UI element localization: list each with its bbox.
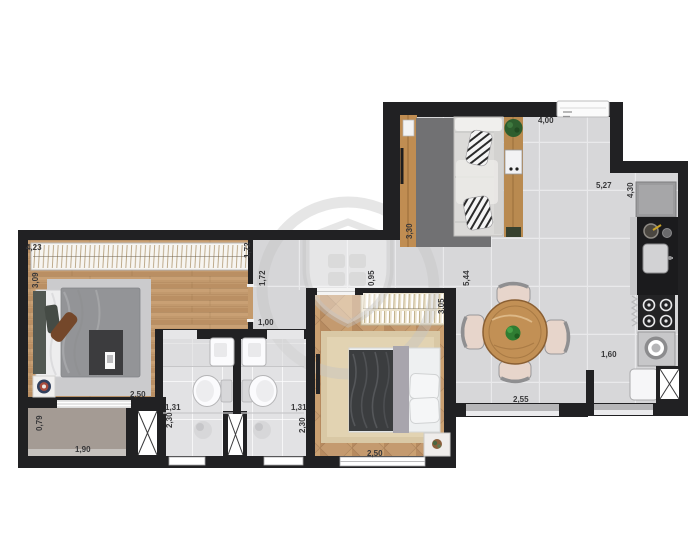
- svg-text:4,00: 4,00: [538, 116, 554, 125]
- svg-text:0,79: 0,79: [35, 415, 44, 431]
- svg-text:5,27: 5,27: [596, 181, 612, 190]
- svg-text:2,50: 2,50: [130, 390, 146, 399]
- svg-text:1,90: 1,90: [75, 445, 91, 454]
- svg-text:0,95: 0,95: [367, 270, 376, 286]
- svg-text:1,31: 1,31: [165, 403, 181, 412]
- svg-text:2,55: 2,55: [513, 395, 529, 404]
- svg-text:1,00: 1,00: [258, 318, 274, 327]
- svg-text:4,23: 4,23: [26, 243, 42, 252]
- svg-text:1,31: 1,31: [291, 403, 307, 412]
- svg-text:1,72: 1,72: [258, 270, 267, 286]
- svg-text:1,60: 1,60: [601, 350, 617, 359]
- svg-text:3,05: 3,05: [437, 298, 446, 314]
- svg-text:1,72: 1,72: [243, 242, 252, 258]
- svg-text:3,09: 3,09: [31, 272, 40, 288]
- svg-text:4,30: 4,30: [626, 182, 635, 198]
- svg-text:2,30: 2,30: [165, 412, 174, 428]
- svg-text:5,44: 5,44: [462, 270, 471, 286]
- svg-text:3,30: 3,30: [405, 223, 414, 239]
- svg-text:2,30: 2,30: [298, 417, 307, 433]
- svg-text:2,50: 2,50: [367, 449, 383, 458]
